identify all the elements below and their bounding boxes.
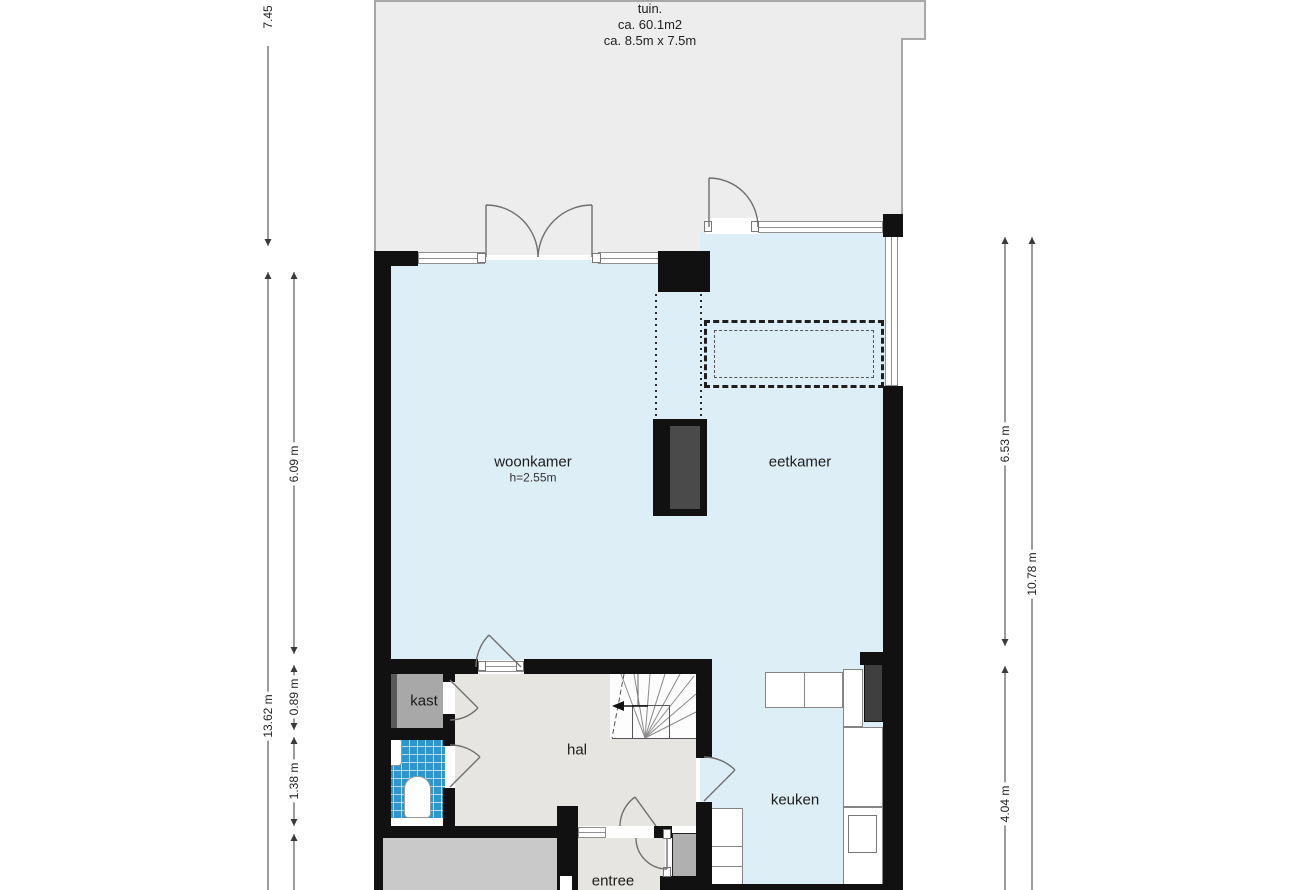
kitchen-cabinet-corner [843,669,863,727]
wall-keuken-top-stub [860,652,903,665]
woonkamer-ceiling-height: h=2.55m [494,471,572,485]
hinge-mark [751,221,759,232]
toilet-bowl [404,776,431,818]
wall-hal-top-a [374,659,478,674]
kitchen-appliance [864,658,883,722]
wall-left-lower [374,836,383,890]
keuken-label: keuken [771,792,819,809]
wall-keuken-upper [696,659,712,758]
wall-left [374,251,391,836]
dim-eetkamer-length: 6.53 m [997,423,1013,466]
hinge-mark [516,661,524,671]
floor-plan: tuin. ca. 60.1m2 ca. 8.5m x 7.5m woonkam… [0,0,1300,890]
hal-label: hal [567,742,587,759]
kitchen-sink [848,815,877,853]
garden-border-step [903,38,926,40]
garden-border-left [374,0,376,255]
window-woonkamer-left [418,252,485,264]
hinge-mark [663,829,671,839]
wall-toilet-right-bottom [443,788,455,828]
garden-label-block: tuin. ca. 60.1m2 ca. 8.5m x 7.5m [604,1,696,49]
dim-kast-depth: 0.89 m [286,676,302,719]
kitchen-counter-divider [804,672,805,708]
garden-border-right-upper [924,0,926,40]
kitchen-counter-right [843,727,883,807]
garden-name: tuin. [604,1,696,17]
window-eetkamer-top [758,221,883,233]
eetkamer-label: eetkamer [769,454,832,471]
chimney-inner [670,426,700,509]
storage-room-floor [383,838,557,890]
dim-toilet-depth: 1.38 m [286,760,302,803]
hinge-mark [478,661,486,671]
vide-dashed-inner [714,330,874,378]
hinge-mark [663,867,671,877]
dim-total-left: 13.62 m [260,691,276,740]
garden-border-right-lower [901,38,903,216]
kast-label: kast [410,693,438,710]
hinge-mark [477,253,486,263]
wall-bottom-toilet-hal [374,826,578,838]
woonkamer-label: woonkamer [494,454,572,471]
wall-hal-top-b [524,659,712,674]
entree-label: entree [592,873,635,890]
woonkamer-label-block: woonkamer h=2.55m [494,454,572,485]
wall-step-block [658,251,710,292]
wall-kast-bottom [374,728,455,740]
hinge-mark [592,253,601,263]
wall-right [883,386,903,890]
entree-door-opening [606,826,654,838]
dim-keuken-length: 4.04 m [997,783,1013,826]
dim-woonkamer-length: 6.09 m [286,443,302,486]
wall-entree-bottom [660,876,712,890]
garden-size: ca. 8.5m x 7.5m [604,33,696,49]
threshold-hal-entree [578,827,606,838]
garden-area: ca. 60.1m2 [604,17,696,33]
wall-entree-stub-gap [560,876,572,890]
window-eetkamer-right [885,235,898,386]
wall-keuken-bottom [712,884,903,890]
dim-total-right: 10.78 m [1024,549,1040,598]
dim-garden-depth: 7.45 [260,2,276,31]
window-woonkamer-right [598,252,660,264]
stairs-floor [610,673,696,739]
wall-kast-right-top [443,674,455,682]
wall-eetkamer-corner [883,214,903,237]
hinge-mark [704,221,712,232]
